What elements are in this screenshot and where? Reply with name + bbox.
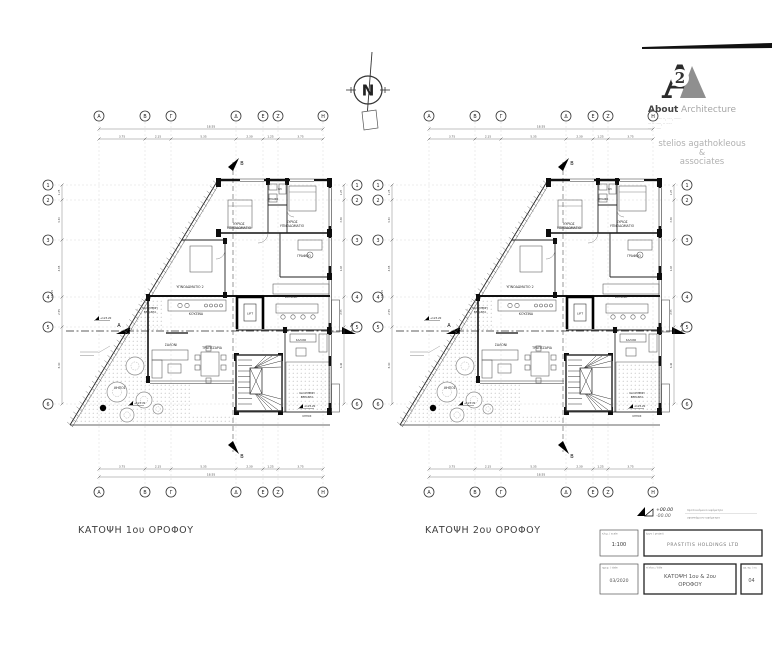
room-label: ΥΠΝΟΔΩΜΑΤΙΟ (227, 226, 252, 230)
dim-text: 2.55 (340, 309, 343, 315)
hatch-tick (397, 422, 403, 427)
date-value: 03/2020 (609, 578, 628, 584)
grid-bubble-label: 3 (376, 238, 379, 244)
stool (311, 315, 315, 319)
hatch-tick (512, 232, 518, 237)
dim-text-overall: 18.15 (380, 290, 384, 298)
level-value: +123.20 (100, 316, 112, 320)
room-label: ΣΑΛΟΝΙ (495, 343, 507, 347)
hatch-tick (185, 227, 191, 232)
dim-text: 3.30 (340, 217, 343, 223)
grid-bubble-label: 6 (685, 402, 688, 408)
hatch-tick (160, 268, 166, 273)
dim-text: 2.55 (670, 309, 673, 315)
column (657, 178, 662, 187)
room-label: ΣΑΛΟΝΙ (165, 343, 177, 347)
room-label: ΚΟΥΖΙΝΑ (189, 312, 204, 316)
room-label: ΚΟΥΖΙΝΑ (519, 312, 534, 316)
level-marker (95, 316, 99, 320)
covered-veranda (130, 298, 164, 330)
kitchen-counter (273, 284, 329, 294)
grid-bubble-label: 2 (355, 198, 358, 204)
number-label: αρ. σχ. / no. (743, 567, 758, 570)
column (546, 229, 551, 237)
door-swing (216, 250, 225, 259)
dim-text: 2.55 (57, 309, 61, 315)
room-label: ΤΡΑΠΕΖΑΡΙΑ (201, 346, 223, 350)
dim-text: 3.30 (387, 217, 391, 223)
tree (136, 392, 152, 408)
column (553, 292, 557, 298)
dim-text: 4.65 (387, 265, 391, 271)
grid-bubble-label: 6 (355, 402, 358, 408)
dim-text: 3.75 (297, 465, 303, 469)
room-label: WC (608, 187, 612, 191)
logo-number: 2 (675, 69, 685, 87)
grid-bubble-label: 2 (46, 198, 49, 204)
dim-text: 1.25 (267, 465, 273, 469)
section-marker-b-bottom (228, 441, 239, 454)
level-legend-icon (637, 507, 645, 516)
tree (456, 357, 474, 375)
scale-value: 1:100 (612, 542, 626, 548)
stool (641, 315, 645, 319)
room-label: ΥΠΝΟΔΩΜΑΤΙΟ (610, 224, 635, 228)
hatch-tick (67, 422, 73, 427)
dim-text: 5.35 (530, 465, 536, 469)
column (553, 238, 557, 244)
level-value: +123.20 (304, 404, 316, 408)
room-label: ΜΠΑΝΙΟ (268, 197, 278, 201)
hatch-tick (531, 201, 537, 206)
hob (540, 304, 543, 307)
column (223, 238, 227, 244)
column (216, 178, 221, 187)
hatch-tick (157, 273, 163, 278)
dim-text: 6.40 (57, 362, 61, 368)
dim-text-overall: 18.15 (50, 290, 54, 298)
dim-text: 3.75 (627, 465, 633, 469)
covered-veranda (460, 298, 494, 330)
hatch-tick (500, 253, 506, 258)
section-marker-b-bottom (558, 441, 569, 454)
hatch-tick (527, 206, 533, 211)
tree (466, 392, 482, 408)
section-letter-b: B (240, 454, 244, 460)
dim-text: 1.25 (597, 465, 603, 469)
bed (289, 186, 316, 211)
room-label: ΥΠΝΟΔΩΜΑΤΙΟ (557, 226, 582, 230)
grid-bubble-label: 3 (46, 238, 49, 244)
grid-bubble-label: 3 (685, 238, 688, 244)
column (657, 273, 662, 280)
hatch-tick (176, 242, 182, 247)
dim-text: 2.30 (576, 465, 582, 469)
stool (291, 315, 295, 319)
sofa (152, 360, 162, 378)
dim-text: 3.75 (449, 465, 455, 469)
hob (215, 304, 218, 307)
dim-text: 1.25 (387, 189, 391, 195)
plan-caption-floor-2: ΚΑΤΟΨΗ 2ου ΟΡΟΦΟΥ (425, 525, 541, 536)
column (223, 292, 227, 298)
grid-bubble-label: 2 (376, 198, 379, 204)
room-label: ΜΠΑΝΙΟ (598, 197, 608, 201)
dim-text: 2.30 (246, 135, 252, 139)
room-label: ΚΗΠΟΣ (114, 386, 125, 390)
level-value: +123.20 (430, 316, 442, 320)
column (657, 229, 662, 237)
room-label: ΥΠΝΟΔΩΜΑΤΙΟ 2 (176, 285, 203, 289)
dim-text: 3.75 (627, 135, 633, 139)
dim-text: 5.35 (200, 465, 206, 469)
legend-text: υφιστάμενο υψόμετρο (687, 516, 720, 520)
kitchen-counter (603, 284, 659, 294)
grid-bubble-label: Β (143, 114, 146, 120)
hatch-tick (524, 212, 530, 217)
hob (550, 304, 553, 307)
drawing-title: ΟΡΟΦΟΥ (678, 582, 702, 588)
coffee-table (168, 364, 181, 373)
hatch-tick (204, 196, 210, 201)
dining-table (201, 352, 219, 376)
dim-text: 2.15 (155, 465, 161, 469)
hatch-tick (503, 247, 509, 252)
stool (301, 315, 305, 319)
grid-bubble-label: Β (473, 114, 476, 120)
hatch-tick (496, 258, 502, 263)
legend-existing-level: -00.00 (656, 513, 671, 519)
hatch-tick (521, 217, 527, 222)
grid-bubble-label: Γ (170, 114, 173, 120)
room-label: ΥΠΝΟΔΩΜΑΤΙΟ (280, 224, 305, 228)
dim-text: 1.25 (340, 189, 343, 195)
column (216, 229, 221, 237)
stool (621, 315, 625, 319)
dim-text: 1.25 (597, 135, 603, 139)
door-swing (546, 250, 555, 259)
lift-label: LIFT (247, 312, 253, 316)
hatch-tick (151, 283, 157, 288)
chair (195, 365, 200, 370)
grid-bubble-label: 1 (685, 183, 688, 189)
level-legend-icon (645, 509, 653, 516)
level-value: +123.20 (634, 404, 646, 408)
room-label: ΓΡΑΦΕΙΟ (297, 254, 311, 258)
dim-text: 2.15 (485, 465, 491, 469)
grid-bubble-label: 1 (46, 183, 49, 189)
lift-label: LIFT (577, 312, 583, 316)
grid-bubble-label: 6 (46, 402, 49, 408)
hatch-tick (478, 289, 484, 294)
dim-text: 3.75 (119, 135, 125, 139)
balcony (332, 384, 340, 412)
hatch-tick (170, 253, 176, 258)
dim-text: 2.30 (246, 465, 252, 469)
section-letter-a: A (117, 323, 121, 329)
grid-bubble-label: 6 (376, 402, 379, 408)
room-label: ΒΕΡΑΝΤΑ (631, 395, 644, 399)
grid-bubble-label: Ε (261, 490, 264, 496)
dim-text-overall: 18.55 (207, 125, 216, 129)
title-label: τίτλος / title (646, 566, 663, 570)
column (146, 294, 150, 301)
chair (551, 365, 556, 370)
dim-text: 4.65 (670, 265, 673, 271)
hatch-tick (188, 222, 194, 227)
sofa (482, 350, 518, 360)
section-letter-b: B (240, 161, 244, 167)
column (146, 376, 150, 383)
section-marker-b-top (558, 158, 569, 171)
hatch-tick (493, 263, 499, 268)
column (327, 178, 332, 187)
section-marker-b-top (228, 158, 239, 171)
dim-text: 2.15 (485, 135, 491, 139)
section-letter-b: B (570, 161, 574, 167)
dining-table (531, 352, 549, 376)
dim-text: 1.25 (57, 189, 61, 195)
room-label: ΤΡΑΠΕΖΑΡΙΑ (531, 346, 553, 350)
grid-bubble-label: 5 (685, 325, 688, 331)
chair (551, 355, 556, 360)
hatch-tick (207, 191, 213, 196)
tree (126, 357, 144, 375)
grid-bubble-label: Γ (500, 490, 503, 496)
room-label: ΣΑΛΟΝΙ (296, 338, 307, 342)
hob (210, 304, 213, 307)
room-label: ΚΟΥΖΙΝΑ (615, 295, 628, 299)
dim-text: 2.15 (155, 135, 161, 139)
dim-text: 4.65 (57, 265, 61, 271)
room-label: ΥΠΝΟΔΩΜΑΤΙΟ 2 (506, 285, 533, 289)
column (546, 178, 551, 187)
hatch-tick (515, 227, 521, 232)
grid-bubble-label: 1 (355, 183, 358, 189)
drawing-title: ΚΑΤΟΨΗ 1ου & 2ου (664, 574, 716, 580)
column (327, 229, 332, 237)
coffee-table (626, 348, 636, 356)
tree (437, 382, 457, 402)
grid-bubble-label: Η (651, 114, 655, 120)
grid-bubble-label: Β (473, 490, 476, 496)
hatch-tick (537, 191, 543, 196)
level-marker (425, 316, 429, 320)
hatch-tick (490, 268, 496, 273)
floor-plan-1: AABBΑΑΒΒΓΓΔΔΕΕΖΖΗΗ11223344556618.553.752… (40, 100, 370, 510)
grid-bubble-label: Γ (500, 114, 503, 120)
hatch-tick (166, 258, 172, 263)
chair (525, 355, 530, 360)
room-label: ΚΟΥΖΙΝΑ (285, 295, 298, 299)
dim-text: 6.40 (340, 362, 343, 368)
desk (628, 240, 652, 250)
sofa (482, 360, 492, 378)
grid-bubble-label: 5 (376, 325, 379, 331)
hatch-tick (197, 206, 203, 211)
stool (611, 315, 615, 319)
hatch-tick (518, 222, 524, 227)
tree (450, 408, 464, 422)
tree (107, 382, 127, 402)
tree-trunk-dot (100, 405, 106, 411)
hatch-tick (484, 278, 490, 283)
room-label: ΓΡΑΦΕΙΟ (627, 254, 641, 258)
hatch-tick (191, 217, 197, 222)
hatch-tick (506, 242, 512, 247)
drawing-number: 04 (748, 578, 754, 584)
chair (221, 355, 226, 360)
dim-text-overall: 18.55 (207, 473, 216, 477)
dim-text: 2.30 (576, 135, 582, 139)
dim-text-overall: 18.55 (537, 125, 546, 129)
annotation-leader (98, 346, 110, 353)
date-label: ημερ. / date (602, 566, 618, 570)
bed (619, 186, 646, 211)
grid-bubble-label: Η (321, 490, 325, 496)
column (283, 327, 287, 333)
grid-bubble-label: 2 (685, 198, 688, 204)
hatch-tick (481, 283, 487, 288)
grid-bubble-label: Η (321, 114, 325, 120)
bed (520, 246, 542, 272)
logo-rule (642, 43, 772, 49)
level-value: +123.70 (134, 401, 146, 405)
project-name: PRASTITIS HOLDINGS LTD (667, 542, 739, 548)
sink (185, 303, 189, 307)
sink (178, 303, 182, 307)
grid-bubble-label: 1 (376, 183, 379, 189)
grid-bubble-label: Ε (591, 490, 594, 496)
tree-trunk-dot (430, 405, 436, 411)
plan-caption-floor-1: ΚΑΤΟΨΗ 1ου ΟΡΟΦΟΥ (78, 525, 194, 536)
kitchen-island (276, 304, 318, 313)
grid-bubble-label: 5 (355, 325, 358, 331)
room-label: WC (278, 187, 282, 191)
grid-bubble-label: Ε (591, 114, 594, 120)
hob (205, 304, 208, 307)
dim-text: 5.35 (530, 135, 536, 139)
room-label: ΚΗΠΟΣ (444, 386, 455, 390)
hatch-tick (182, 232, 188, 237)
dim-text: 3.30 (670, 217, 673, 223)
dim-text: 3.75 (119, 465, 125, 469)
grid-bubble-label: Β (143, 490, 146, 496)
grid-bubble-label: Η (651, 490, 655, 496)
grid-bubble-label: 4 (355, 295, 358, 301)
tree (483, 404, 493, 414)
hob (535, 304, 538, 307)
sofa (152, 350, 188, 360)
kitchen-island (606, 304, 648, 313)
sink (508, 303, 512, 307)
dim-text: 6.40 (387, 362, 391, 368)
drawing-sheet: N A2AboutArchitecture··· ········· ··, ·… (0, 0, 780, 656)
floor-plan-2: AABBΑΑΒΒΓΓΔΔΕΕΖΖΗΗ11223344556618.553.752… (370, 100, 700, 510)
column (327, 273, 332, 280)
sink (515, 303, 519, 307)
bed (190, 246, 212, 272)
stool (631, 315, 635, 319)
dim-text: 4.65 (340, 265, 343, 271)
chair (195, 355, 200, 360)
dim-text: 3.30 (57, 217, 61, 223)
grid-bubble-label: 3 (355, 238, 358, 244)
column (476, 376, 480, 383)
annotation-leader (428, 346, 440, 353)
desk (298, 240, 322, 250)
north-letter: N (362, 82, 375, 100)
grid-bubble-label: 5 (46, 325, 49, 331)
dim-text: 5.35 (200, 135, 206, 139)
hatch-tick (540, 186, 546, 191)
dim-text: 1.25 (670, 189, 673, 195)
project-label: έργο / project (646, 532, 664, 536)
column (613, 327, 617, 333)
grid-bubble-label: Γ (170, 490, 173, 496)
balcony (662, 300, 670, 332)
hatch-tick (201, 201, 207, 206)
room-label: ΚΗΠΟΣ (633, 414, 642, 418)
hatch-tick (210, 186, 216, 191)
tree (153, 404, 163, 414)
grid-bubble-label: Ε (261, 114, 264, 120)
balcony (332, 300, 340, 332)
dim-text: 3.75 (449, 135, 455, 139)
dim-text: 1.25 (267, 135, 273, 139)
room-label: ΚΗΠΟΣ (303, 414, 312, 418)
coffee-table (296, 348, 306, 356)
scale-label: κλιμ. / scale (602, 532, 618, 536)
chair (221, 365, 226, 370)
room-label: ΣΑΛΟΝΙ (626, 338, 637, 342)
hob (220, 304, 223, 307)
hatch-tick (154, 278, 160, 283)
legend-text: προτεινόμενο υψόμετρο (687, 508, 723, 512)
hatch-tick (194, 212, 200, 217)
dim-text: 3.75 (297, 135, 303, 139)
section-letter-b: B (570, 454, 574, 460)
dim-text: 2.55 (387, 309, 391, 315)
legend-proposed-level: +00.00 (656, 507, 673, 513)
title-block: +00.00-00.00προτεινόμενο υψόμετρουφιστάμ… (595, 503, 780, 615)
chair (525, 365, 530, 370)
room-label: ΒΕΡΑΝΤΑ (474, 310, 487, 314)
grid-bubble-label: 4 (685, 295, 688, 301)
stool (281, 315, 285, 319)
coffee-table (498, 364, 511, 373)
level-value: +123.70 (464, 401, 476, 405)
hatch-tick (534, 196, 540, 201)
hatch-tick (163, 263, 169, 268)
hatch-tick (487, 273, 493, 278)
section-letter-a: A (447, 323, 451, 329)
chair (536, 378, 541, 383)
room-label: ΒΕΡΑΝΤΑ (144, 310, 157, 314)
dim-text: 6.40 (670, 362, 673, 368)
dim-text-overall: 18.55 (537, 473, 546, 477)
hob (545, 304, 548, 307)
column (476, 294, 480, 301)
room-label: ΒΕΡΑΝΤΑ (301, 395, 314, 399)
hatch-tick (173, 247, 179, 252)
chair (206, 378, 211, 383)
tree (120, 408, 134, 422)
balcony (662, 384, 670, 412)
hatch-tick (148, 289, 154, 294)
